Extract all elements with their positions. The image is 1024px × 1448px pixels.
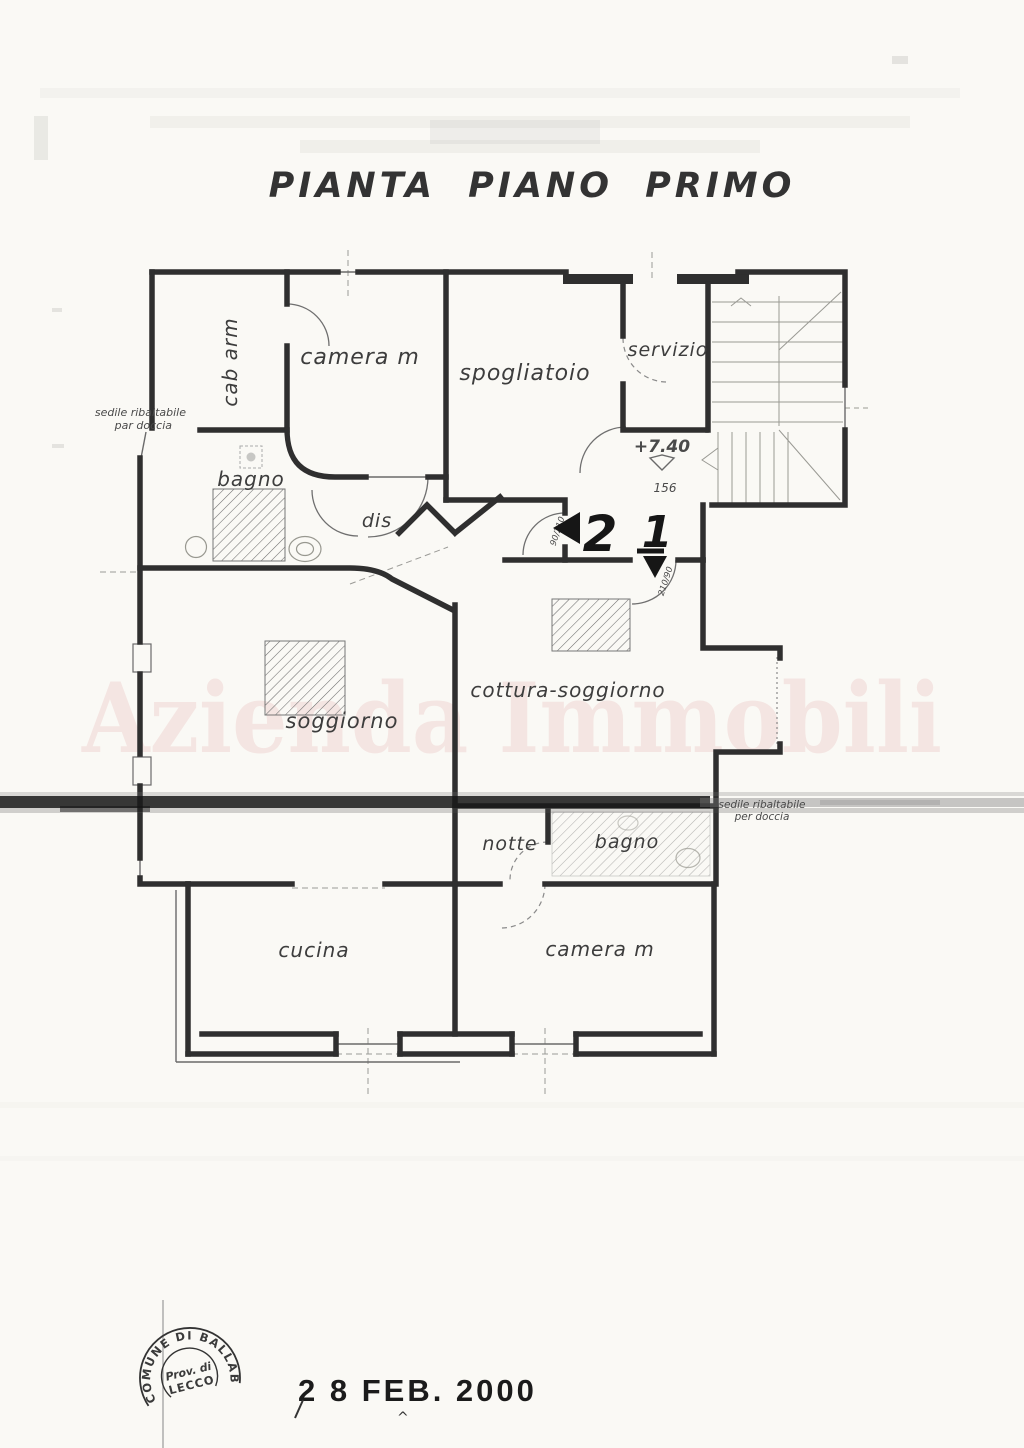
handwritten-marks: 2 1 <box>553 505 672 578</box>
scan-noise <box>0 56 1024 1161</box>
label-camera-top: camera m <box>300 345 420 370</box>
elevation-label: +7.40 <box>634 437 690 457</box>
scanned-floor-plan-page: Azienda Immobili PIANTA PIANO PRIMO <box>0 0 1024 1448</box>
door-size-right: 210/90 <box>657 566 676 598</box>
label-spogliatoio: spogliatoio <box>459 361 590 386</box>
label-bagno-top: bagno <box>217 467 285 491</box>
page-title: PIANTA PIANO PRIMO <box>269 166 796 206</box>
note-sedile-top-2: par doccia <box>114 419 173 432</box>
level-dim: 156 <box>654 481 677 495</box>
label-soggiorno: soggiorno <box>286 709 399 733</box>
label-cottura: cottura-soggiorno <box>470 678 665 702</box>
scan-fold-band <box>0 792 1024 813</box>
date-stamp-text: 2 8 FEB. 2000 <box>298 1373 537 1408</box>
note-sedile-mid-1: sedile ribaltabile <box>719 799 806 811</box>
mark-number-2: 2 <box>583 505 618 563</box>
elevation-diamond <box>650 455 674 470</box>
label-bagno-mid: bagno <box>595 831 659 853</box>
note-sedile-top-1: sedile ribaltabile <box>95 406 186 419</box>
label-camera-bottom: camera m <box>545 937 654 961</box>
label-cucina: cucina <box>278 938 349 962</box>
date-caret-mark: ^ <box>397 1410 409 1426</box>
label-dis: dis <box>362 510 392 532</box>
label-servizio: servizio <box>628 339 709 361</box>
note-sedile-mid-2: per doccia <box>734 811 790 823</box>
date-stamp: 2 8 FEB. 2000 ^ <box>295 1373 537 1426</box>
label-cab-arm: cab arm <box>218 317 242 406</box>
label-notte: notte <box>482 833 537 855</box>
